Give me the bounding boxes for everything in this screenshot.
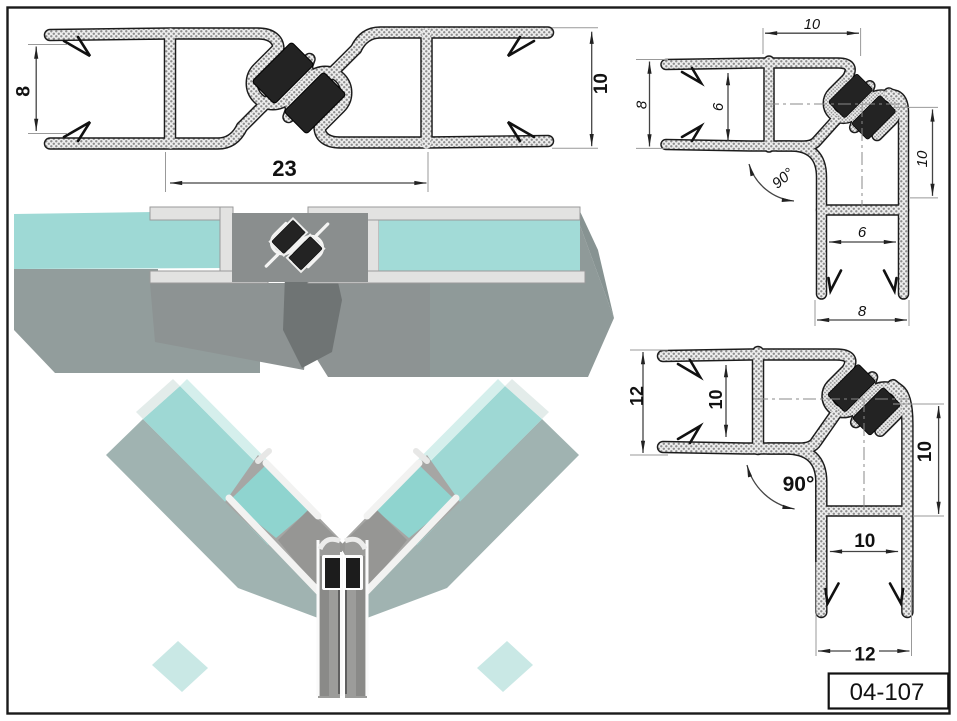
svg-text:10: 10 bbox=[914, 150, 931, 167]
svg-text:23: 23 bbox=[272, 156, 296, 181]
svg-text:6: 6 bbox=[710, 102, 727, 111]
svg-text:10: 10 bbox=[804, 17, 820, 33]
svg-text:90°: 90° bbox=[769, 165, 797, 193]
svg-text:90°: 90° bbox=[783, 473, 815, 496]
svg-text:04-107: 04-107 bbox=[850, 679, 925, 706]
svg-text:8: 8 bbox=[858, 303, 867, 320]
svg-text:6: 6 bbox=[858, 224, 867, 241]
svg-text:12: 12 bbox=[627, 386, 647, 406]
svg-text:10: 10 bbox=[854, 531, 875, 552]
svg-text:10: 10 bbox=[591, 73, 612, 94]
svg-text:8: 8 bbox=[634, 100, 651, 109]
svg-text:12: 12 bbox=[854, 645, 875, 666]
svg-text:8: 8 bbox=[12, 86, 34, 97]
svg-text:10: 10 bbox=[915, 441, 936, 462]
svg-text:10: 10 bbox=[706, 389, 726, 409]
